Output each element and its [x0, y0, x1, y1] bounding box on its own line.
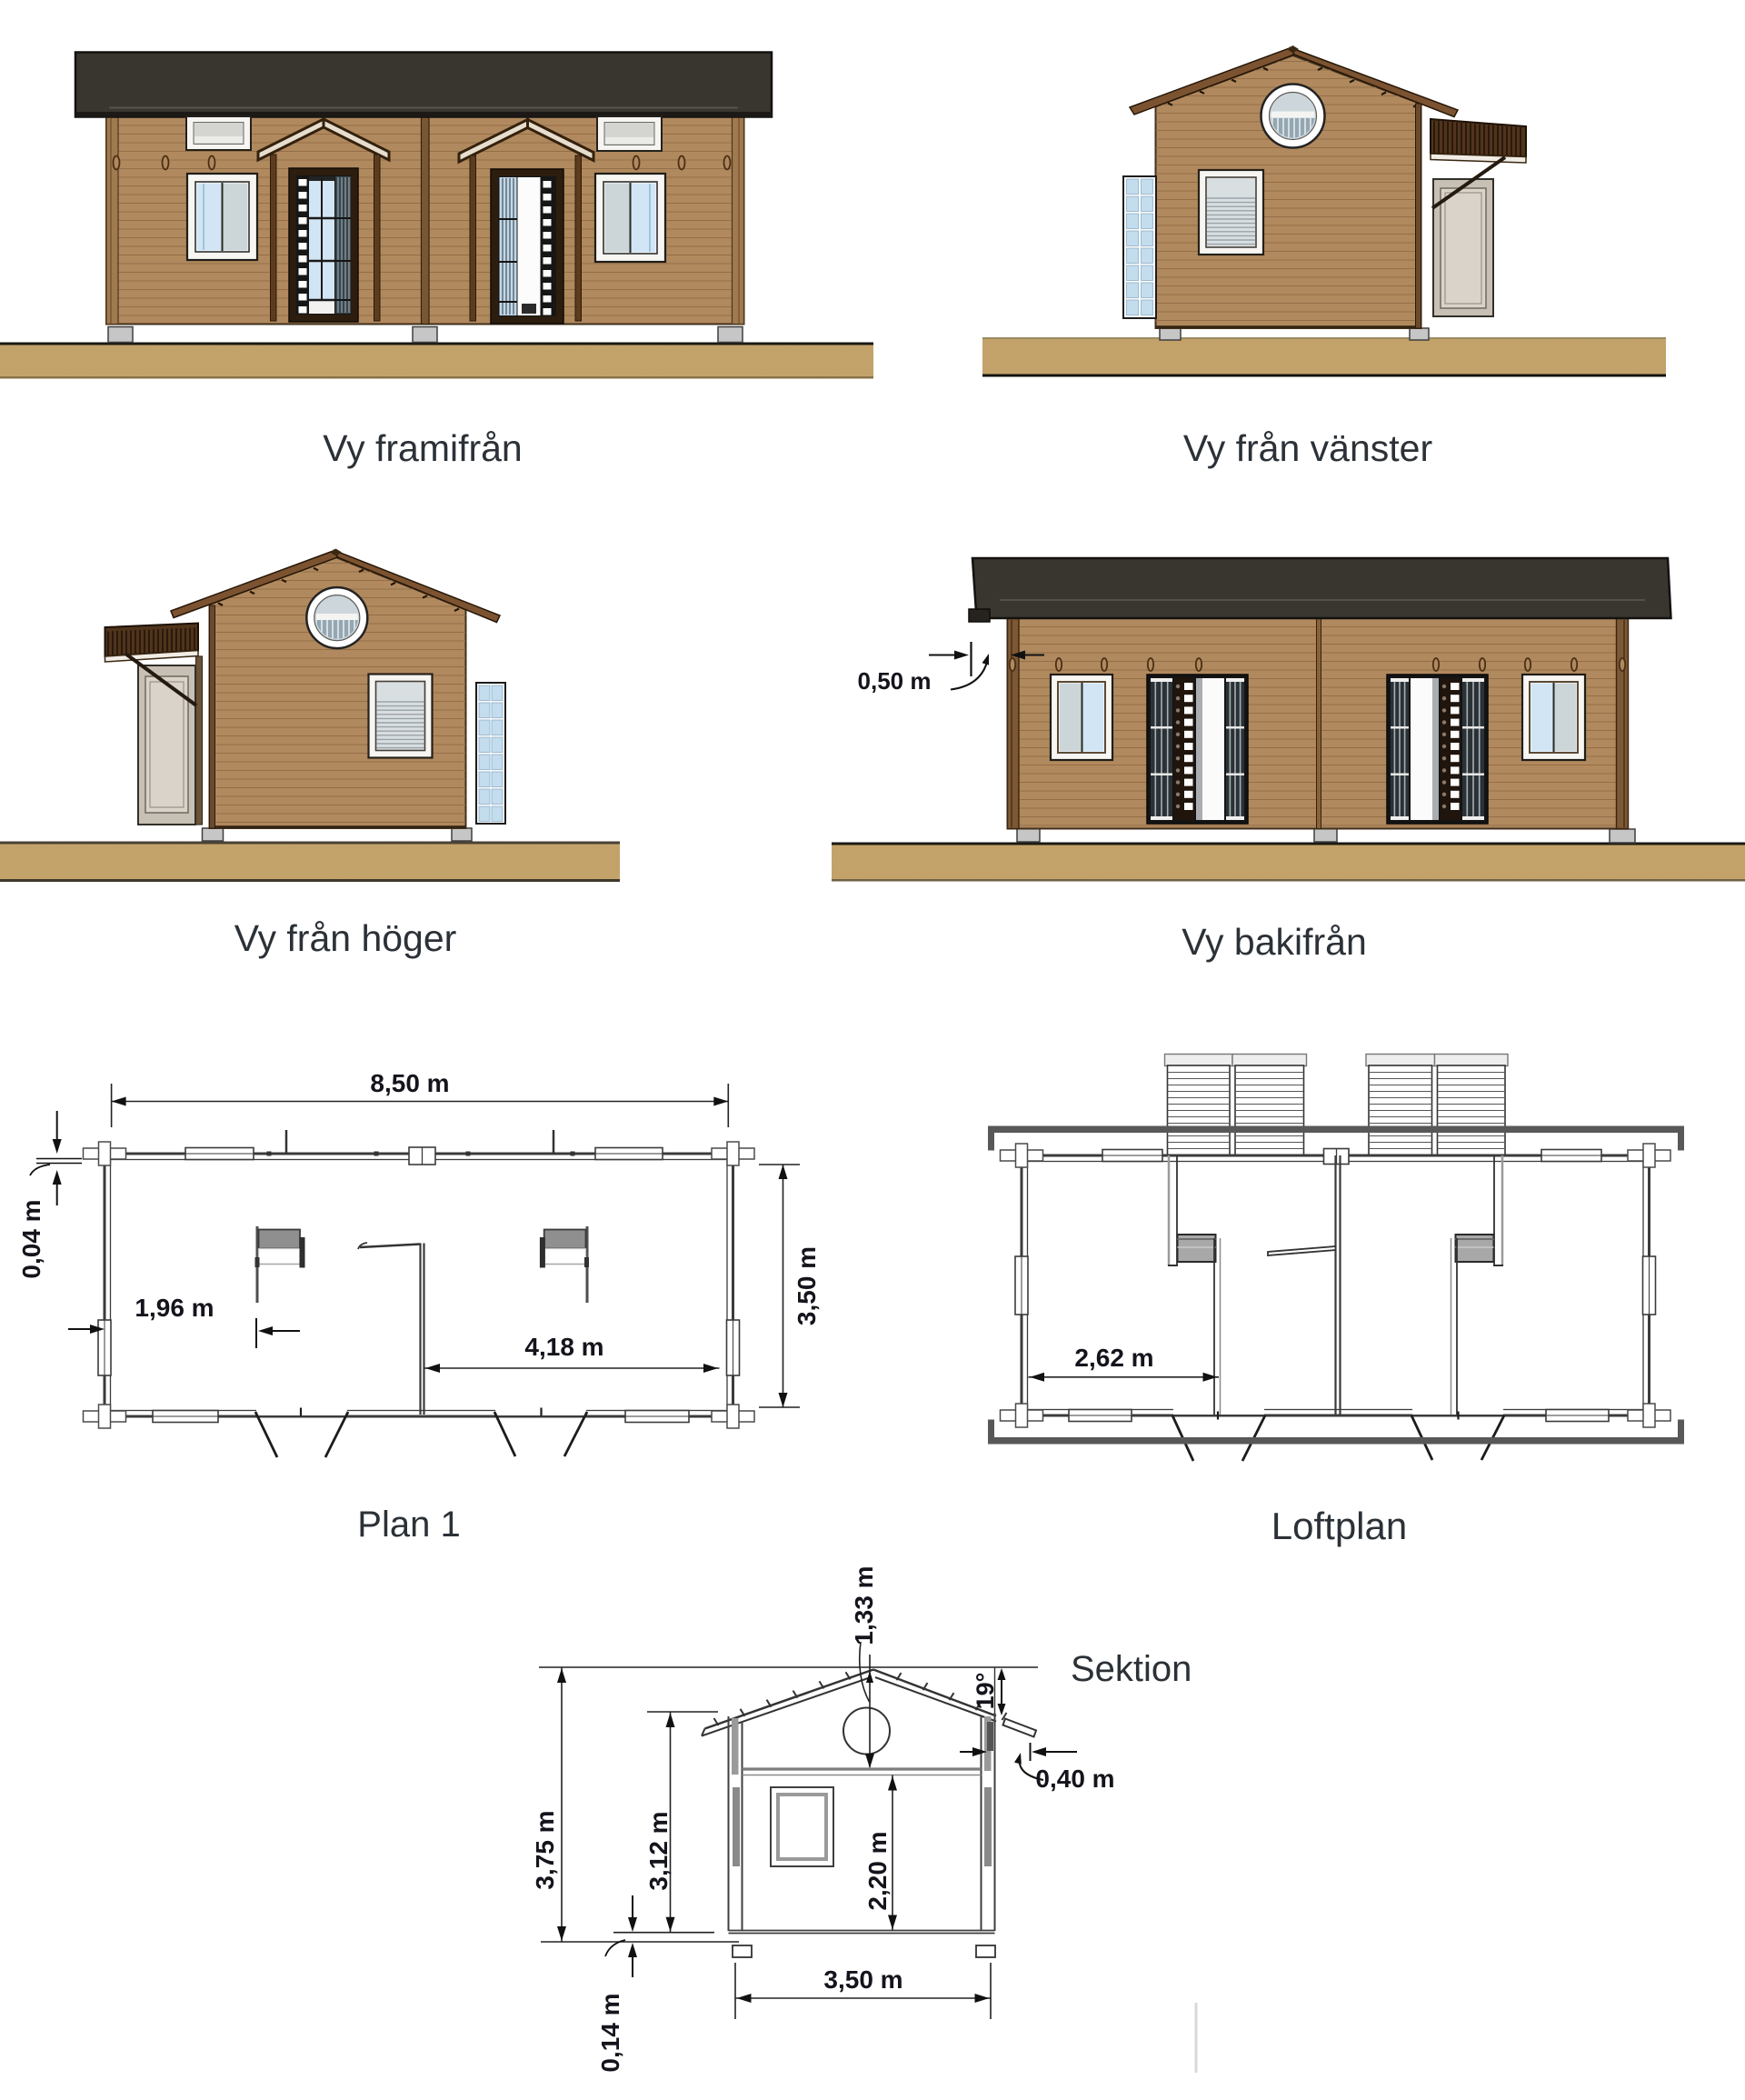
svg-text:Vy bakifrån: Vy bakifrån — [1182, 921, 1367, 963]
svg-text:Vy framifrån: Vy framifrån — [323, 427, 522, 469]
svg-text:3,75 m: 3,75 m — [531, 1810, 559, 1889]
svg-text:19°: 19° — [972, 1673, 999, 1710]
svg-text:4,18 m: 4,18 m — [524, 1333, 603, 1361]
svg-text:Vy från höger: Vy från höger — [234, 917, 457, 959]
svg-text:3,50 m: 3,50 m — [823, 1965, 902, 1994]
svg-text:8,50 m: 8,50 m — [370, 1069, 449, 1097]
svg-text:3,50 m: 3,50 m — [793, 1246, 821, 1325]
svg-text:3,12 m: 3,12 m — [644, 1811, 673, 1890]
svg-text:Sektion: Sektion — [1071, 1649, 1192, 1689]
svg-text:2,20 m: 2,20 m — [863, 1831, 892, 1910]
svg-text:0,40 m: 0,40 m — [1035, 1765, 1114, 1793]
svg-text:0,04 m: 0,04 m — [17, 1199, 45, 1278]
svg-text:Plan 1: Plan 1 — [357, 1505, 460, 1545]
svg-text:0,14 m: 0,14 m — [596, 1993, 624, 2072]
svg-text:2,62 m: 2,62 m — [1074, 1344, 1153, 1372]
svg-text:0,50 m: 0,50 m — [858, 667, 932, 695]
svg-text:1,33 m: 1,33 m — [850, 1565, 878, 1645]
svg-text:1,96 m: 1,96 m — [135, 1294, 214, 1322]
svg-text:Vy från vänster: Vy från vänster — [1183, 427, 1432, 469]
svg-text:Loftplan: Loftplan — [1271, 1505, 1407, 1547]
